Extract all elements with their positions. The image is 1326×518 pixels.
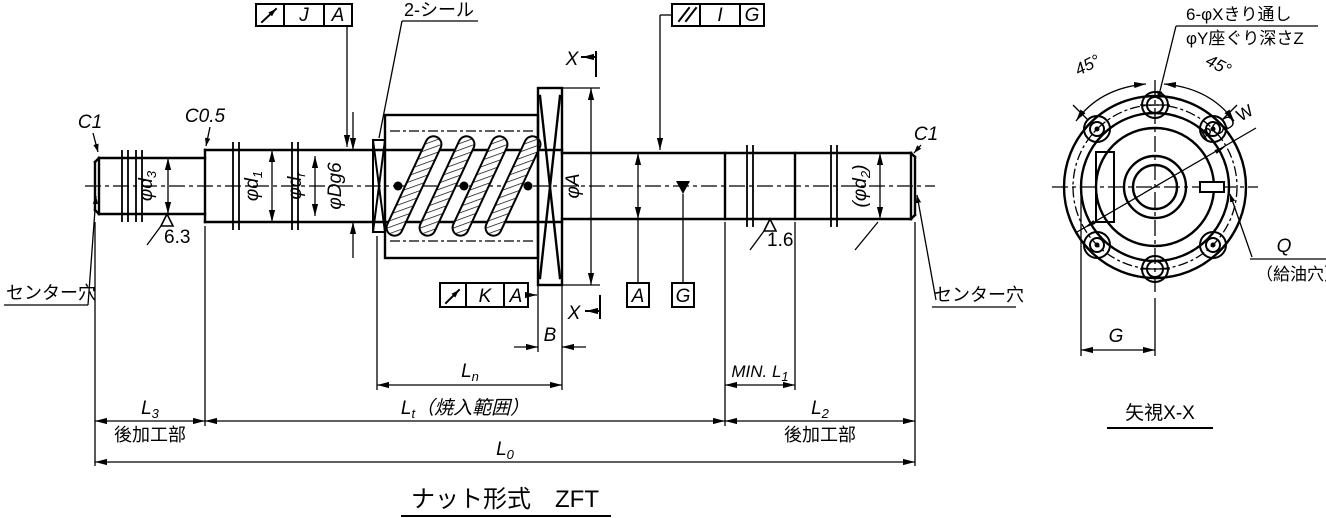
parallelism-icon [679,8,696,21]
pcd-label: PCD W [1198,101,1257,146]
chamfer-c05: C0.5 [185,106,226,127]
circular-runout-icon [262,9,276,22]
center-hole-right-label: センター穴 [934,285,1024,305]
datum-g: G [672,181,694,307]
dim-dr: φdr [285,172,308,200]
datum-a: A [627,153,649,307]
dim-Dg6: φDg6 [325,162,346,210]
datum-g-label: G [676,286,691,307]
dim-d3: φd3 [136,170,159,201]
dim-d2: (φd2) [850,165,873,208]
circular-runout-icon [446,290,459,303]
datum-ref-a2: A [509,286,523,307]
dim-d1: φd1 [242,171,265,201]
section-x-label: X [565,49,580,70]
drawing-sheet: A G J A I G [0,0,1326,518]
tolerance-frame-i-g: I G [660,4,764,150]
dim-L2: L2 [811,398,830,421]
pcd-callout: PCD W [1077,101,1257,232]
dim-G: G [1109,326,1124,347]
dim-Lt: Lt（焼入範囲） [401,397,529,421]
roughness-right: 1.6 [750,219,793,251]
bolt-hole-note: 6-φXきり通し φY座ぐり深さZ [1158,5,1318,99]
datum-a-label: A [631,286,645,307]
grease-hole-note: （給油穴） [1256,265,1326,284]
dim-L3: L3 [141,398,160,421]
center-hole-left: センター穴 [4,196,96,305]
center-hole-right: センター穴 [917,195,1024,307]
tolerance-j: J [298,5,309,26]
drawing-title: ナット形式 ZFT [411,486,599,513]
view-label: 矢視X-X [1108,402,1212,428]
roughness-63: 6.3 [164,227,190,248]
seal-callout: 2-シール [379,0,478,138]
post-machining-right: 後加工部 [784,425,856,445]
holes-note-line2: φY座ぐり深さZ [1186,29,1304,48]
section-marker-bottom: X [567,296,600,324]
seal-label: 2-シール [404,0,474,20]
roughness-16: 1.6 [767,230,793,251]
datum-ref-a: A [331,5,345,26]
tolerance-frame-k-a: K A [440,283,537,307]
center-hole-left-label: センター穴 [6,283,96,303]
roughness-left: 6.3 [147,214,190,248]
title-block: ナット形式 ZFT [402,486,610,516]
angle-45-right: 45° [1203,51,1235,80]
ballscrew-drawing: A G J A I G [0,0,1326,518]
dim-Ln: Ln [461,361,479,384]
angle-45-left: 45° [1072,51,1104,80]
end-view: 45° 45° 6-φXきり通し φY座ぐり深さZ PCD W Q （給油穴） [1052,5,1326,428]
datum-ref-g: G [745,5,760,26]
chamfer-c1-left: C1 [78,112,102,133]
post-machining-left: 後加工部 [114,425,186,445]
view-xx-label: 矢視X-X [1125,402,1195,424]
dim-L0: L0 [496,439,515,462]
dim-A: φA [563,173,584,198]
tolerance-i: I [717,5,723,26]
tolerance-frame-j-a: J A [256,4,352,147]
section-marker-top: X [565,49,596,76]
main-view: A G J A I G [4,0,1024,466]
holes-note-line1: 6-φXきり通し [1186,5,1291,24]
dim-B: B [544,325,557,346]
section-x-label: X [567,303,582,324]
chamfer-c1-right: C1 [914,124,938,145]
grease-hole-label: Q [1277,236,1292,257]
tolerance-k: K [479,286,493,307]
dim-minL1: MIN. L1 [731,362,788,384]
